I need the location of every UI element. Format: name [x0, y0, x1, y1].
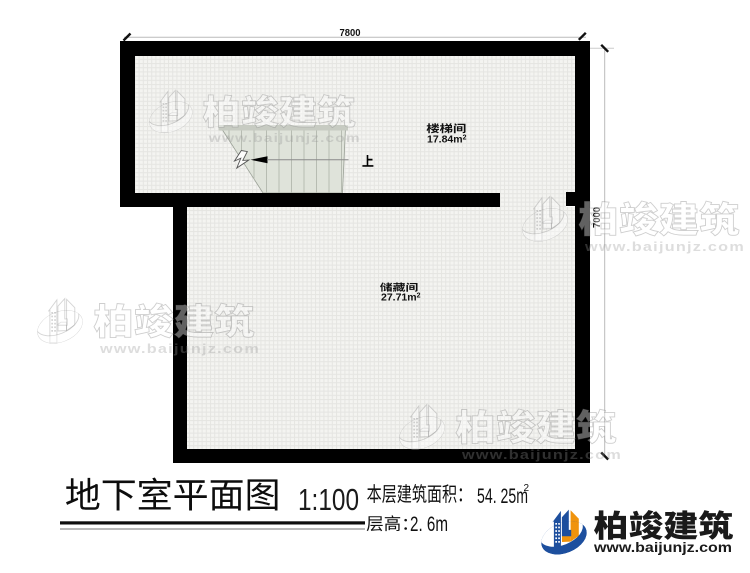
svg-text:1:100: 1:100	[298, 483, 359, 517]
svg-text:17.84m2: 17.84m2	[427, 134, 467, 146]
svg-text:2: 2	[524, 483, 530, 494]
svg-text:27.71m2: 27.71m2	[381, 292, 421, 304]
svg-text:54. 25m: 54. 25m	[477, 485, 528, 508]
svg-text:www.baijunjz.com: www.baijunjz.com	[593, 540, 732, 555]
svg-text:2. 6m: 2. 6m	[410, 513, 448, 536]
svg-text:7800: 7800	[340, 27, 361, 39]
